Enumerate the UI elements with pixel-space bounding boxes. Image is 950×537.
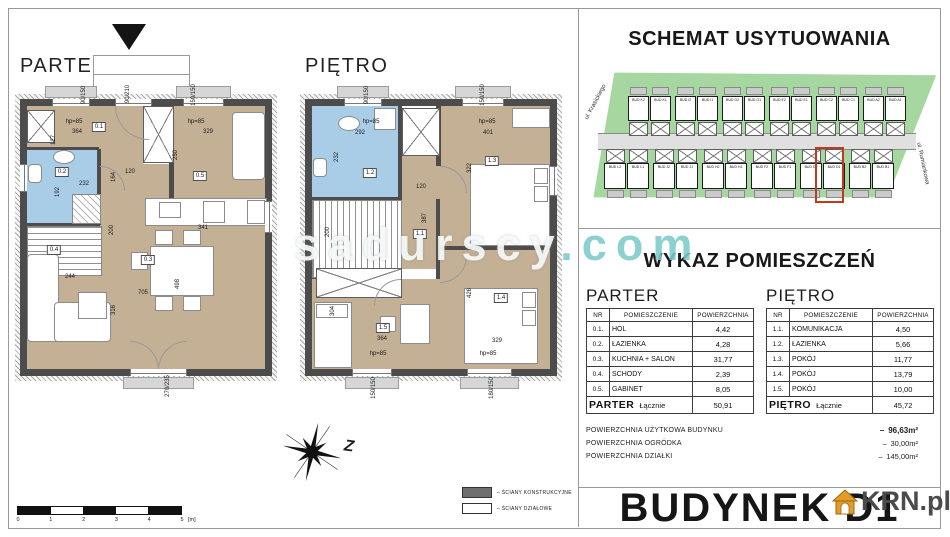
building-label: BUD G2 (723, 97, 742, 103)
dim-label: hp=85 (363, 119, 380, 125)
building-unit: BUD F1 (774, 148, 796, 198)
building-label: BUD L1 (628, 164, 648, 170)
dim-label: 292 (355, 130, 365, 136)
building-pad (679, 190, 696, 198)
table-row: 1.4.POKÓJ13,79 (767, 367, 934, 382)
dim-label: 364 (72, 129, 82, 135)
building-label: BUD B1 (873, 164, 893, 170)
building-roof (724, 87, 741, 95)
room-name-cell: POKÓJ (790, 382, 873, 397)
dim-label: 322 (467, 163, 473, 173)
table-total-row: PIĘTROŁącznie45,72 (767, 397, 934, 414)
total-label-cell: PARTERŁącznie (587, 397, 693, 414)
building-label: BUD F2 (752, 164, 772, 170)
building-house: BUD J1 (676, 163, 698, 189)
room-name-cell: GABINET (610, 382, 693, 397)
floorplan-sheet: { "watermark": {"name": "sadurscy", "tld… (0, 0, 950, 537)
summary-value: – 145,00m² (878, 452, 918, 461)
table-row: 0.3.KUCHNIA + SALON31,77 (587, 352, 754, 367)
building-label: BUD C2 (817, 97, 836, 103)
garage-cell (753, 149, 772, 163)
toilet (28, 164, 42, 183)
room-number-cell: 0.1. (587, 322, 610, 337)
pillow (522, 310, 536, 326)
building-house: BUD L1 (627, 163, 649, 189)
room-name-cell: POKÓJ (790, 352, 873, 367)
room-name-cell: KOMUNIKACJA (790, 322, 873, 337)
building-label: BUD A2 (864, 97, 883, 103)
building-label: BUD L2 (605, 164, 625, 170)
dim-label: hp=85 (479, 119, 496, 125)
dim-label: 150/150 (371, 377, 377, 399)
summary-label: POWIERZCHNIA UŻYTKOWA BUDYNKU (586, 427, 880, 434)
building-label: BUD A1 (886, 97, 905, 103)
room-area-cell: 11,77 (873, 352, 934, 367)
column-header: POMIESZCZENIE (790, 309, 873, 322)
legend-label: – ŚCIANY DZIAŁOWE (497, 506, 552, 512)
scale-bar (18, 506, 182, 515)
table-row: 0.1.HOL4,42 (587, 322, 754, 337)
building-pad (852, 190, 869, 198)
building-house: BUD H2 (702, 163, 724, 189)
garage-cell (629, 149, 648, 163)
legend-item: – ŚCIANY DZIAŁOWE (462, 503, 572, 514)
table-row: 0.2.ŁAZIENKA4,28 (587, 337, 754, 352)
building-label: BUD H1 (726, 164, 746, 170)
building-pad (777, 190, 794, 198)
garage-cell (745, 122, 764, 136)
column-header: NR (587, 309, 610, 322)
room-number-cell: 1.5. (767, 382, 790, 397)
dim-label: 164 (111, 172, 117, 182)
building-pad (656, 190, 673, 198)
site-row-bottom: BUD L2BUD L1BUD J2BUD J1BUD H2BUD H1BUD … (604, 148, 897, 198)
total-suffix: Łącznie (639, 401, 665, 410)
house-icon (831, 488, 859, 516)
column-header: NR (767, 309, 790, 322)
room-number-cell: 1.4. (767, 367, 790, 382)
wall-segment (440, 246, 550, 250)
coffee-table (78, 292, 107, 319)
building-unit: BUD I1 (697, 87, 718, 136)
building-roof (793, 87, 810, 95)
kitchen-sink (159, 202, 181, 218)
garage-cell (770, 122, 789, 136)
room-area-cell: 4,50 (873, 322, 934, 337)
building-unit: BUD L2 (604, 148, 626, 198)
garage-cell (655, 149, 674, 163)
window (550, 166, 557, 196)
toilet (313, 158, 327, 177)
area-summary: POWIERZCHNIA UŻYTKOWA BUDYNKU– 96,63m²PO… (586, 424, 918, 463)
total-label-cell: PIĘTROŁącznie (767, 397, 873, 414)
building-house: BUD A2 (863, 96, 884, 121)
scale-tick: 0 (16, 517, 19, 523)
building-roof (699, 87, 716, 95)
sink (53, 150, 75, 164)
window (467, 369, 512, 376)
legend-swatch-dark (462, 487, 492, 498)
column-header: POWIERZCHNIA (873, 309, 934, 322)
room-id-label: 0.3 (141, 255, 155, 265)
pillow (534, 168, 548, 184)
room-number-cell: 0.4. (587, 367, 610, 382)
building-house: BUD B1 (872, 163, 894, 189)
window-sill (123, 377, 194, 389)
scale-unit: [m] (188, 517, 196, 523)
garage-cell (698, 122, 717, 136)
building-label: BUD I1 (698, 97, 717, 103)
pietro-hatch-band (300, 94, 562, 381)
building-unit: BUD E2 (769, 87, 790, 136)
building-pad (705, 190, 722, 198)
building-unit: BUD A2 (863, 87, 884, 136)
stairs-pietro (312, 200, 402, 278)
building-house: BUD H1 (725, 163, 747, 189)
dim-label: 90/210 (125, 85, 131, 103)
building-pad (607, 190, 624, 198)
scale-segment (83, 506, 117, 515)
room-id-label: 0.2 (55, 167, 69, 177)
room-number-cell: 0.3. (587, 352, 610, 367)
dining-table (150, 246, 214, 296)
dim-label: 232 (334, 152, 340, 162)
dim-label: hp=85 (370, 351, 387, 357)
scale-tick: 1 (49, 517, 52, 523)
dim-label: 90/150 (364, 86, 370, 104)
entrance-arrow-icon (112, 24, 146, 50)
building-house: BUD G1 (744, 96, 765, 121)
room-id-label: 1.4 (494, 293, 508, 303)
pietro-room-table: NRPOMIESZCZENIEPOWIERZCHNIA1.1.KOMUNIKAC… (766, 308, 934, 414)
room-id-label: 1.2 (363, 168, 377, 178)
building-unit: BUD B2 (849, 148, 871, 198)
dim-label: 329 (203, 129, 213, 135)
parter-room-table: NRPOMIESZCZENIEPOWIERZCHNIA0.1.HOL4,420.… (586, 308, 754, 414)
building-label: BUD H2 (703, 164, 723, 170)
parter-table-heading: PARTER (586, 286, 659, 306)
table-row: 1.5.POKÓJ10,00 (767, 382, 934, 397)
chair (155, 296, 173, 311)
building-house: BUD C1 (838, 96, 859, 121)
building-label: BUD I2 (676, 97, 695, 103)
dim-label: 120 (416, 184, 426, 190)
dim-label: 705 (138, 290, 148, 296)
fridge (247, 200, 265, 224)
total-label: PARTER (589, 399, 634, 411)
dim-label: 364 (377, 336, 387, 342)
dim-label: hp=85 (480, 351, 497, 357)
building-house: BUD I1 (697, 96, 718, 121)
building-house: BUD K1 (650, 96, 671, 121)
room-id-label: 1.1 (413, 229, 427, 239)
building-label: BUD E2 (770, 97, 789, 103)
dim-label: 192 (55, 187, 61, 197)
building-house: BUD G2 (722, 96, 743, 121)
room-area-cell: 8,05 (693, 382, 754, 397)
building-pad (728, 190, 745, 198)
building-roof (630, 87, 647, 95)
building-house: BUD L2 (604, 163, 626, 189)
window-sill (176, 86, 231, 98)
summary-value: – 30,00m² (883, 439, 918, 448)
table-header-row: NRPOMIESZCZENIEPOWIERZCHNIA (767, 309, 934, 322)
dim-label: hp=85 (66, 119, 83, 125)
building-unit: BUD L1 (627, 148, 649, 198)
building-label: BUD G1 (745, 97, 764, 103)
scale-tick: 3 (115, 517, 118, 523)
dim-label: 426 (467, 288, 473, 298)
dim-label: 401 (483, 130, 493, 136)
compass-rose-icon (279, 419, 345, 485)
wall-legend: – ŚCIANY KONSTRUKCYJNE– ŚCIANY DZIAŁOWE (462, 487, 572, 519)
wykaz-title: WYKAZ POMIESZCZEŃ (578, 250, 941, 273)
summary-label: POWIERZCHNIA OGRÓDKA (586, 440, 883, 447)
building-house: BUD E1 (791, 96, 812, 121)
highlighted-building-outline (815, 147, 844, 203)
window (20, 164, 27, 192)
dim-label: 316 (111, 305, 117, 315)
stove (203, 201, 225, 223)
room-id-label: 0.1 (92, 122, 106, 132)
dim-label: 150/150 (480, 84, 486, 106)
building-unit: BUD E1 (791, 87, 812, 136)
garage-cell (886, 122, 905, 136)
window (183, 99, 224, 106)
room-id-label: 1.5 (376, 323, 390, 333)
window (344, 99, 382, 106)
logo-text: KRN.pl (861, 486, 950, 517)
room-name-cell: KUCHNIA + SALON (610, 352, 693, 367)
building-label: BUD E1 (792, 97, 811, 103)
room-area-cell: 10,00 (873, 382, 934, 397)
site-row-top: BUD K2BUD K1BUD I2BUD I1BUD G2BUD G1BUD … (628, 87, 909, 136)
scale-segment (115, 506, 149, 515)
parter-plan (20, 99, 272, 376)
table-row: 1.2.ŁAZIENKA5,66 (767, 337, 934, 352)
entrance-door-gap (115, 99, 152, 106)
building-unit: BUD C2 (816, 87, 837, 136)
sofa-gabinet (232, 112, 265, 180)
shower (72, 194, 101, 224)
pillow (522, 292, 536, 308)
room-number-cell: 0.5. (587, 382, 610, 397)
dim-label: hp=85 (188, 119, 205, 125)
building-label: BUD F1 (775, 164, 795, 170)
window-sill (45, 86, 97, 98)
building-unit: BUD A1 (885, 87, 906, 136)
building-unit: BUD G2 (722, 87, 743, 136)
desk (400, 304, 430, 344)
garage-cell (817, 122, 836, 136)
building-label: BUD J2 (654, 164, 674, 170)
schemat-title: SCHEMAT USYTUOWANIA (578, 28, 941, 51)
room-number-cell: 0.2. (587, 337, 610, 352)
window (352, 369, 392, 376)
building-roof (818, 87, 835, 95)
garage-cell (678, 149, 697, 163)
room-name-cell: HOL (610, 322, 693, 337)
room-number-cell: 1.1. (767, 322, 790, 337)
table-row: 0.5.GABINET8,05 (587, 382, 754, 397)
table-header-row: NRPOMIESZCZENIEPOWIERZCHNIA (587, 309, 754, 322)
table-total-row: PARTERŁącznie50,91 (587, 397, 754, 414)
dim-label: 341 (198, 225, 208, 231)
building-house: BUD C2 (816, 96, 837, 121)
building-unit: BUD J1 (676, 148, 698, 198)
table-row: 0.4.SCHODY2,39 (587, 367, 754, 382)
scale-tick: 4 (148, 517, 151, 523)
garage-cell (776, 149, 795, 163)
dim-label: 180/150 (489, 377, 495, 399)
building-label: BUD B2 (850, 164, 870, 170)
garage-cell (651, 122, 670, 136)
garage-cell (629, 122, 648, 136)
[object (833, 490, 857, 501)
sink (338, 116, 360, 131)
building-label: BUD C1 (839, 97, 858, 103)
column-header: POWIERZCHNIA (693, 309, 754, 322)
panel-divider-h1 (578, 228, 941, 229)
total-value-cell: 50,91 (693, 397, 754, 414)
garage-cell (792, 122, 811, 136)
room-number-cell: 1.2. (767, 337, 790, 352)
chair (183, 230, 201, 245)
summary-value: – 96,63m² (880, 426, 918, 435)
krn-logo: KRN.pl (831, 486, 950, 517)
garage-cell (723, 122, 742, 136)
closet-icon (402, 108, 440, 156)
building-unit: BUD C1 (838, 87, 859, 136)
[object (283, 423, 342, 482)
pietro-plan (305, 99, 557, 376)
pillow (534, 186, 548, 202)
building-house: BUD B2 (849, 163, 871, 189)
dim-label: 127 (51, 135, 57, 145)
summary-label: POWIERZCHNIA DZIAŁKI (586, 453, 878, 460)
dim-label: 387 (422, 213, 428, 223)
building-house: BUD I2 (675, 96, 696, 121)
room-area-cell: 5,66 (873, 337, 934, 352)
building-house: BUD A1 (885, 96, 906, 121)
building-roof (652, 87, 669, 95)
building-label: BUD J1 (677, 164, 697, 170)
table-row: 1.3.POKÓJ11,77 (767, 352, 934, 367)
dim-label: 244 (65, 274, 75, 280)
garage-cell (704, 149, 723, 163)
room-id-label: 0.4 (47, 245, 61, 255)
room-name-cell: ŁAZIENKA (610, 337, 693, 352)
legend-swatch-light (462, 503, 492, 514)
building-house: BUD F1 (774, 163, 796, 189)
room-number-cell: 1.3. (767, 352, 790, 367)
building-label: BUD K1 (651, 97, 670, 103)
window-sill (337, 86, 389, 98)
dim-label: 498 (175, 279, 181, 289)
dim-label: 250 (173, 150, 179, 160)
building-pad (875, 190, 892, 198)
building-unit: BUD H1 (725, 148, 747, 198)
desk (512, 108, 550, 128)
building-roof (840, 87, 857, 95)
pietro-table-heading: PIĘTRO (766, 286, 835, 306)
chair (183, 296, 201, 311)
dim-label: 90/150 (81, 86, 87, 104)
building-house: BUD K2 (628, 96, 649, 121)
garage-cell (864, 122, 883, 136)
building-pad (630, 190, 647, 198)
legend-item: – ŚCIANY KONSTRUKCYJNE (462, 487, 572, 498)
legend-label: – ŚCIANY KONSTRUKCYJNE (497, 490, 572, 496)
column-header: POMIESZCZENIE (610, 309, 693, 322)
building-unit: BUD H2 (702, 148, 724, 198)
garage-cell (606, 149, 625, 163)
building-unit: BUD B1 (872, 148, 894, 198)
building-roof (865, 87, 882, 95)
table-row: 1.1.KOMUNIKACJA4,50 (767, 322, 934, 337)
dim-label: 270/235 (165, 375, 171, 397)
room-name-cell: POKÓJ (790, 367, 873, 382)
scale-segment (148, 506, 182, 515)
building-unit: BUD F2 (751, 148, 773, 198)
summary-row: POWIERZCHNIA UŻYTKOWA BUDYNKU– 96,63m² (586, 424, 918, 437)
scale-tick: 2 (82, 517, 85, 523)
building-unit: BUD K2 (628, 87, 649, 136)
room-area-cell: 31,77 (693, 352, 754, 367)
dim-label: 232 (79, 181, 89, 187)
dim-label: 200 (325, 227, 331, 237)
[object (841, 503, 849, 514)
garage-cell (839, 122, 858, 136)
total-label: PIĘTRO (769, 399, 811, 411)
building-unit: BUD I2 (675, 87, 696, 136)
building-unit: BUD K1 (650, 87, 671, 136)
garage-cell (874, 149, 893, 163)
building-roof (887, 87, 904, 95)
scale-segment (50, 506, 84, 515)
window (265, 201, 272, 233)
building-house: BUD J2 (653, 163, 675, 189)
garage-cell (727, 149, 746, 163)
building-roof (677, 87, 694, 95)
room-id-label: 1.3 (485, 156, 499, 166)
building-roof (746, 87, 763, 95)
porch-step-line (94, 74, 189, 75)
room-area-cell: 4,28 (693, 337, 754, 352)
building-label: BUD K2 (629, 97, 648, 103)
pietro-title: PIĘTRO (305, 55, 388, 78)
building-roof (771, 87, 788, 95)
total-value-cell: 45,72 (873, 397, 934, 414)
dim-label: 329 (492, 338, 502, 344)
french-door (130, 369, 187, 376)
garage-cell (676, 122, 695, 136)
building-house: BUD E2 (769, 96, 790, 121)
building-pad (754, 190, 771, 198)
room-name-cell: ŁAZIENKA (790, 337, 873, 352)
building-house: BUD F2 (751, 163, 773, 189)
total-suffix: Łącznie (816, 401, 842, 410)
summary-row: POWIERZCHNIA DZIAŁKI– 145,00m² (586, 450, 918, 463)
room-area-cell: 4,42 (693, 322, 754, 337)
dim-label: 200 (109, 225, 115, 235)
room-area-cell: 13,79 (873, 367, 934, 382)
room-id-label: 0.5 (193, 171, 207, 181)
summary-row: POWIERZCHNIA OGRÓDKA– 30,00m² (586, 437, 918, 450)
building-unit: BUD G1 (744, 87, 765, 136)
dim-label: 304 (330, 306, 336, 316)
chair (155, 230, 173, 245)
